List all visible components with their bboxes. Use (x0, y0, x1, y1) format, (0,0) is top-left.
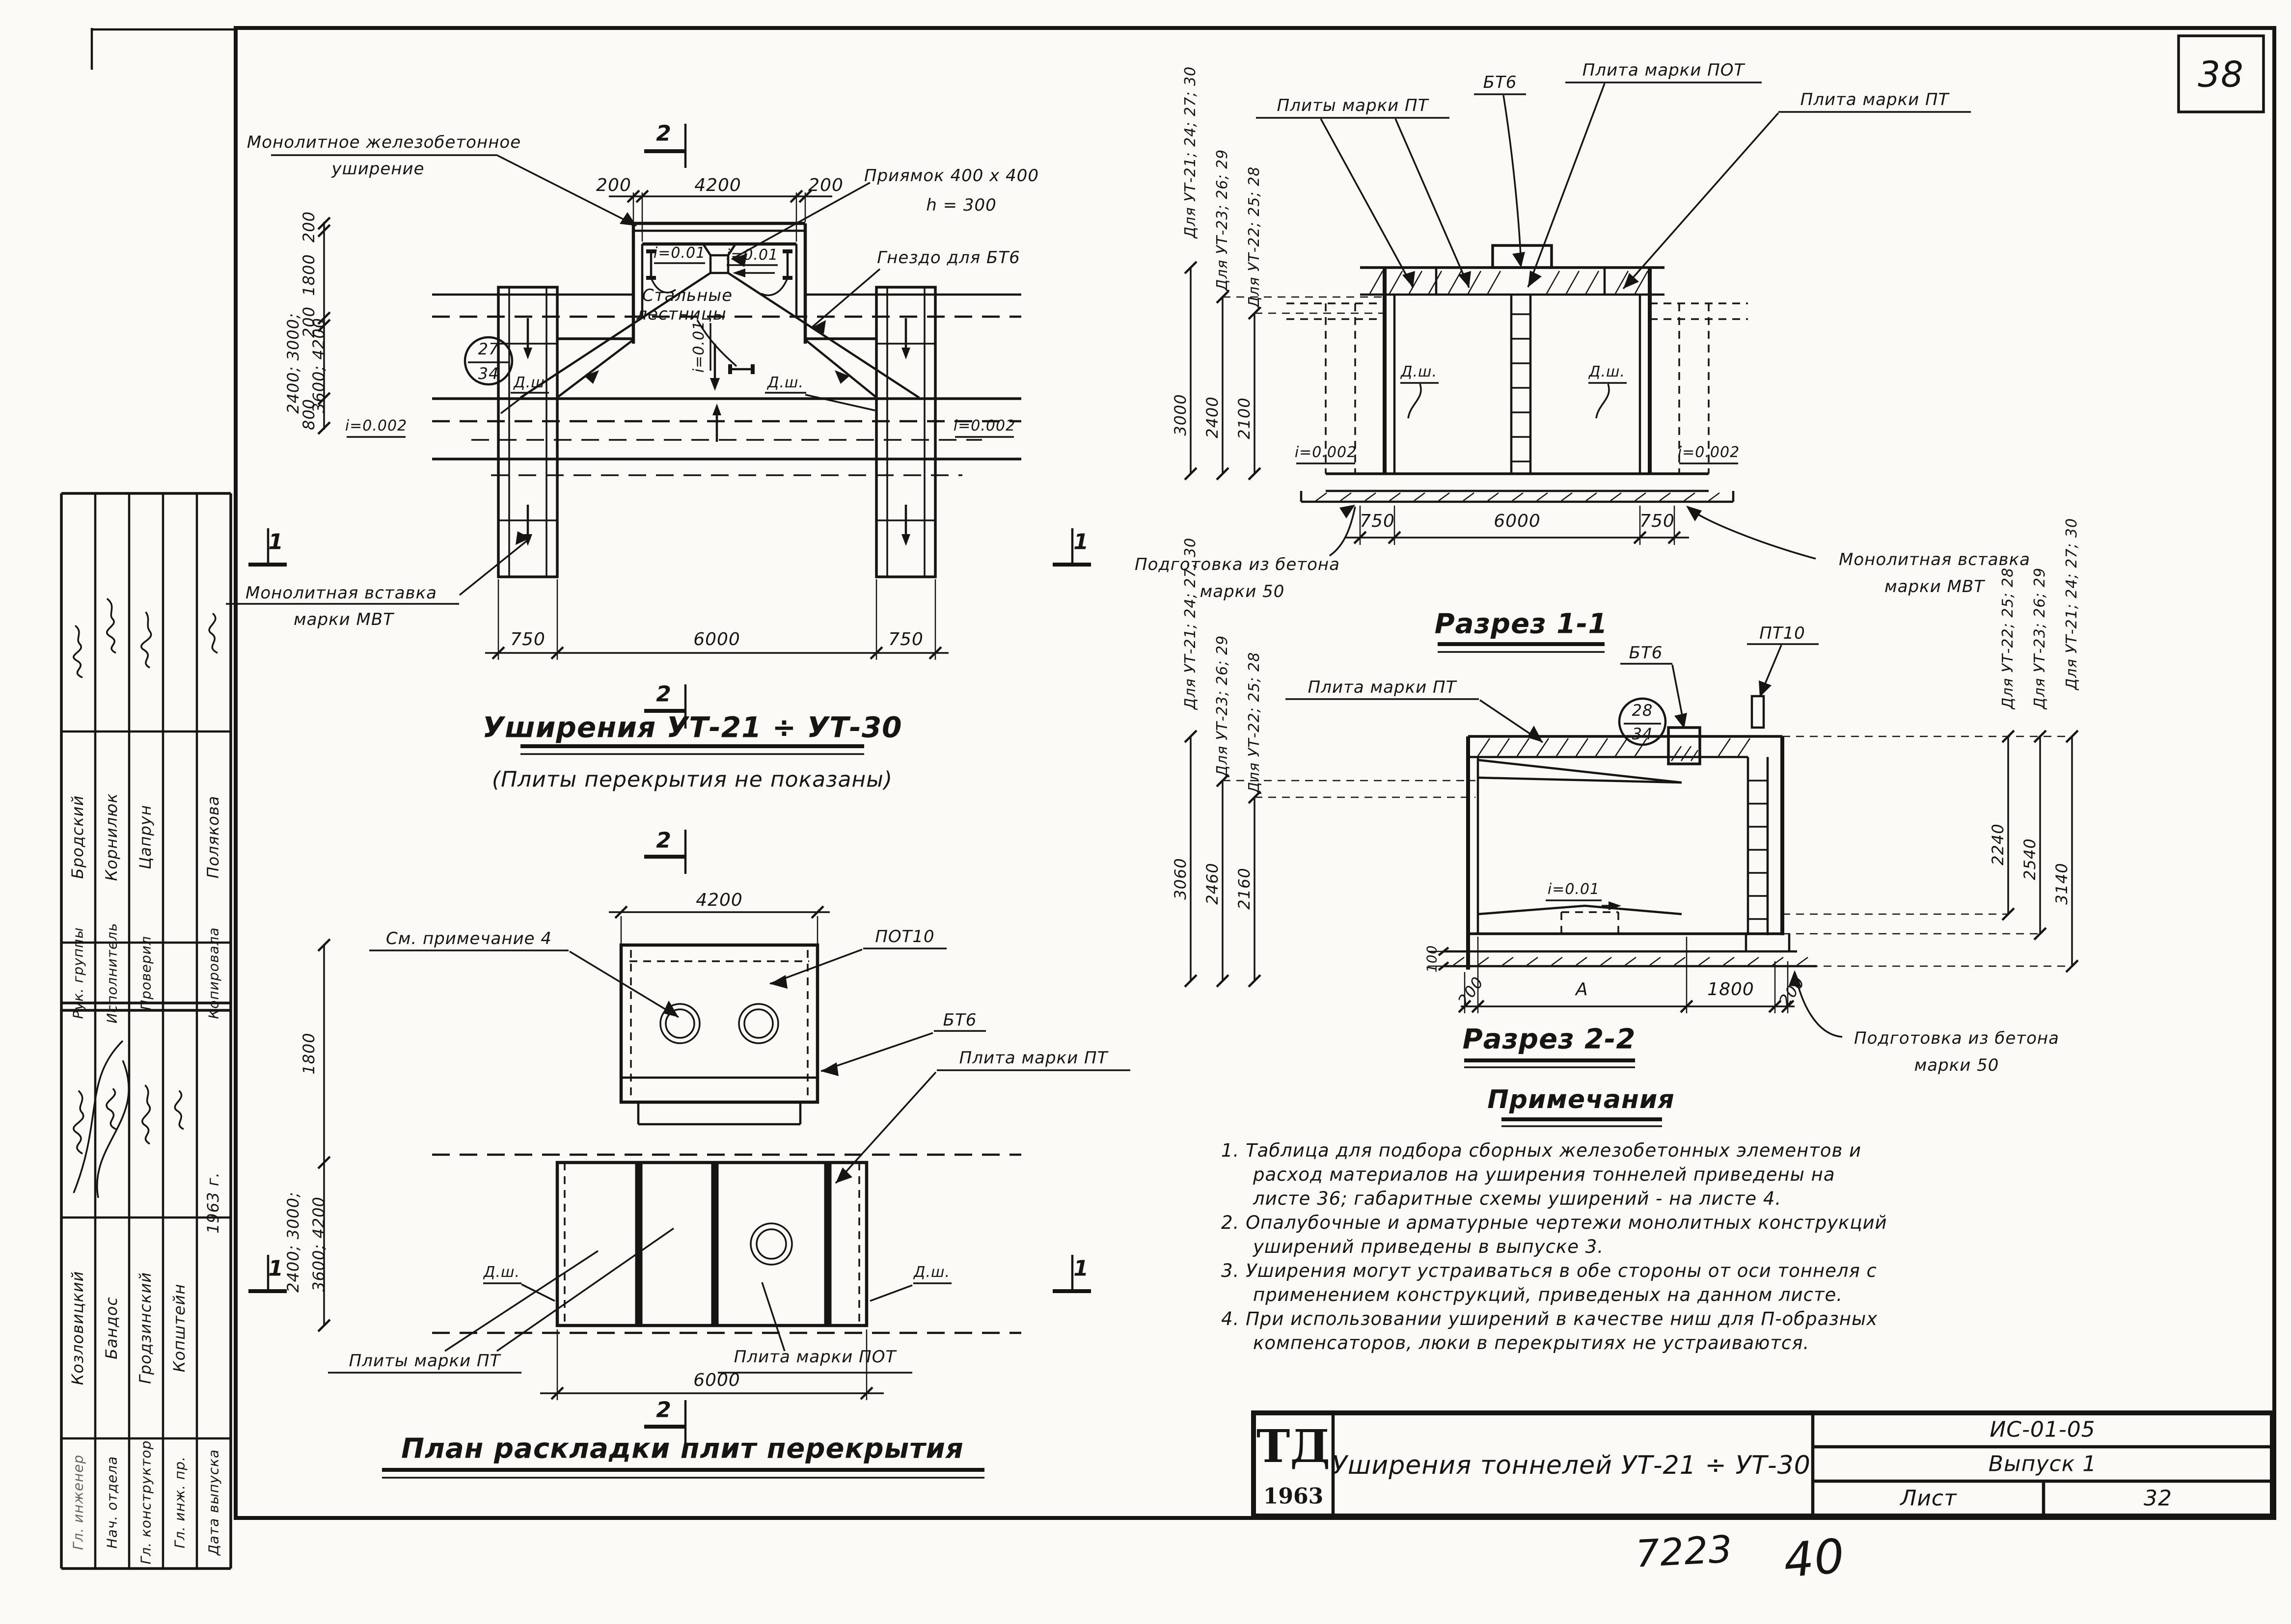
s11-label-plate-pt: Плита марки ПТ (1800, 90, 1949, 109)
s11-prep-1: Подготовка из бетона (1135, 555, 1340, 574)
s11-variant-1: Для УТ-21; 24; 27; 30 (1182, 66, 1199, 238)
dim-left-800: 800 (300, 399, 318, 430)
s11-insert-1: Монолитная вставка (1839, 550, 2030, 569)
s22-left-variant-3: Для УТ-22; 25; 28 (1246, 652, 1263, 793)
note-line: применением конструкций, приведеных на д… (1253, 1284, 1843, 1305)
note-line: 1. Таблица для подбора сборных железобет… (1221, 1140, 1861, 1161)
s3-dim-4200: 4200 (696, 891, 743, 910)
notes-heading: Примечания (1487, 1085, 1675, 1114)
marker-34: 34 (478, 365, 499, 383)
section-flag-2-top: 2 (656, 121, 672, 145)
s3-flag-1-left: 1 (268, 1256, 284, 1280)
s22-bt6: БТ6 (1629, 644, 1663, 662)
s22-right-height-1: 2240 (1990, 823, 2007, 865)
label-monolithic-widening-2: уширение (331, 160, 424, 178)
note-line: листе 36; габаритные схемы уширений - на… (1253, 1188, 1781, 1209)
sidebar-title-gl-inzh-pr: Гл. инж. пр. (172, 1456, 187, 1548)
s11-height-3000: 3000 (1172, 394, 1190, 435)
plan-slabs-title: План раскладки плит перекрытия (401, 1434, 964, 1465)
s22-plate-pt: Плита марки ПТ (1308, 678, 1457, 697)
label-pit: Приямок 400 х 400 (864, 166, 1039, 185)
label-slope-001-center: i=0.01 (691, 321, 708, 373)
s22-dim-100: 100 (1424, 945, 1439, 973)
label-ladders-1: Стальные (642, 286, 733, 305)
s11-dim-750-right: 750 (1639, 512, 1675, 531)
s22-right-variant-3: Для УТ-21; 24; 27; 30 (2064, 518, 2080, 690)
marker-28: 28 (1632, 702, 1653, 720)
sidebar-title-data-vypuska: Дата выпуска (206, 1449, 221, 1555)
section-flag-1-right: 1 (1073, 530, 1089, 554)
s11-height-2100: 2100 (1236, 397, 1254, 439)
dim-bottom-750-right: 750 (888, 630, 924, 650)
blueprint-sheet: 38 7223 40 Рук. группы Исполнитель Прове… (0, 0, 2291, 1624)
s3-flag-2-top: 2 (656, 828, 672, 852)
s11-dim-6000: 6000 (1494, 512, 1541, 531)
s3-dim-6000: 6000 (693, 1371, 740, 1390)
s22-right-variant-1: Для УТ-22; 25; 28 (2000, 568, 2017, 709)
s11-label-plates-pt: Плиты марки ПТ (1277, 96, 1429, 115)
marker-34b: 34 (1632, 726, 1653, 743)
label-insert-1: Монолитная вставка (245, 584, 437, 602)
plan-widening-subtitle: (Плиты перекрытия не показаны) (492, 767, 893, 791)
label-ladders-2: лестницы (636, 305, 726, 324)
note-line: 4. При использовании уширений в качестве… (1221, 1308, 1878, 1329)
s11-joint-right: Д.ш. (1589, 364, 1625, 380)
s11-dim-750-left: 750 (1360, 512, 1395, 531)
s3-plate-pt: Плита марки ПТ (959, 1049, 1108, 1067)
s22-left-variant-2: Для УТ-23; 26; 29 (1214, 635, 1231, 777)
section-flag-2-bottom: 2 (656, 682, 672, 706)
s11-insert-2: марки МВТ (1884, 577, 1985, 596)
org-logo: ТД (1256, 1420, 1330, 1473)
s11-slope-right: i=0.002 (1678, 444, 1740, 461)
note-line: компенсаторов, люки в перекрытиях не уст… (1253, 1332, 1809, 1353)
s3-plates-pt: Плиты марки ПТ (349, 1352, 501, 1370)
drawing-linework (0, 0, 2291, 1624)
plan-slabs-linework (248, 830, 1130, 1478)
sidebar-title-gl-inzhener: Гл. инженер (70, 1455, 85, 1550)
dim-bottom-750-left: 750 (510, 630, 545, 650)
s11-variant-3: Для УТ-22; 25; 28 (1246, 166, 1263, 308)
s3-dim-1800: 1800 (300, 1032, 318, 1074)
sidebar-title-proveril: Проверил (138, 936, 153, 1010)
sidebar-name-brodsky: Бродский (69, 795, 87, 879)
s3-bt6: БТ6 (943, 1011, 977, 1029)
label-monolithic-widening-1: Монолитное железобетонное (247, 133, 521, 152)
label-slope-001-right: i=0.01 (726, 247, 778, 264)
handwritten-code: 7223 (1635, 1528, 1734, 1574)
marker-27: 27 (478, 341, 499, 358)
s11-slope-left: i=0.002 (1295, 444, 1357, 461)
s22-right-height-2: 2540 (2021, 838, 2039, 880)
note-line: 3. Уширения могут устраиваться в обе сто… (1221, 1260, 1877, 1281)
label-joint-right: Д.ш. (767, 375, 804, 391)
s11-joint-left: Д.ш. (1401, 364, 1437, 380)
title-block-code: ИС-01-05 (1990, 1417, 2095, 1441)
s22-pt10: ПТ10 (1759, 624, 1805, 643)
label-slope-0002-right: i=0.002 (954, 418, 1015, 434)
s22-dim-1800: 1800 (1707, 980, 1754, 1000)
handwritten-number: 40 (1781, 1530, 1847, 1588)
s3-joint-right: Д.ш. (914, 1264, 950, 1281)
label-insert-2: марки МВТ (294, 610, 394, 629)
s11-variant-2: Для УТ-23; 26; 29 (1214, 149, 1231, 291)
note-line: уширений приведены в выпуске 3. (1253, 1236, 1604, 1257)
s3-dim-variants-1: 2400; 3000; (285, 1191, 302, 1293)
s3-joint-left: Д.ш. (484, 1264, 520, 1281)
label-joint-left: Д.ш (514, 375, 545, 391)
s22-left-height-3: 2160 (1236, 867, 1254, 909)
sheet-number: 38 (2198, 55, 2244, 95)
sidebar-name-kozlovitsky: Козловицкий (69, 1271, 87, 1385)
note-line: 2. Опалубочные и арматурные чертежи моно… (1221, 1212, 1887, 1233)
label-socket-bt6: Гнездо для БТ6 (877, 248, 1020, 267)
s3-dim-variants-2: 3600; 4200 (310, 1196, 328, 1292)
org-logo-year: 1963 (1263, 1484, 1323, 1509)
section-1-1-title: Разрез 1-1 (1435, 609, 1608, 640)
label-slope-001-left: i=0.01 (654, 245, 706, 262)
s3-flag-1-right: 1 (1073, 1256, 1089, 1280)
label-pit-height: h = 300 (926, 196, 997, 215)
sidebar-table-lines (61, 493, 231, 1569)
s3-flag-2-bottom: 2 (656, 1398, 672, 1422)
s22-slope: i=0.01 (1548, 881, 1600, 898)
sidebar-title-ispolnitel: Исполнитель (104, 922, 119, 1023)
s22-left-height-2: 2460 (1204, 863, 1222, 904)
s11-height-2400: 2400 (1204, 396, 1222, 438)
dim-top-200-right: 200 (808, 176, 844, 195)
sidebar-name-bandos: Бандос (103, 1297, 121, 1359)
s22-right-variant-2: Для УТ-23; 26; 29 (2032, 568, 2048, 709)
dim-left-200a: 200 (300, 211, 318, 243)
dim-bottom-6000: 6000 (693, 630, 740, 650)
section-2-2-linework (1185, 644, 2078, 1067)
sidebar-name-kornilyuk: Корнилюк (103, 793, 121, 881)
sidebar-name-kopshtein: Копштейн (171, 1284, 189, 1373)
sidebar-issue-year: 1963 г. (205, 1172, 222, 1234)
s22-left-variant-1: Для УТ-21; 24; 27; 30 (1182, 538, 1199, 709)
sidebar-name-polyakova: Полякова (205, 796, 222, 879)
sidebar-title-nach-otdela: Нач. отдела (104, 1456, 119, 1549)
s11-label-bt6: БТ6 (1483, 73, 1517, 92)
dim-left-1800: 1800 (300, 254, 318, 296)
label-slope-0002-left: i=0.002 (345, 418, 407, 434)
s22-prep-1: Подготовка из бетона (1854, 1029, 2059, 1048)
dim-top-200-left: 200 (596, 176, 631, 195)
s22-right-height-3: 3140 (2053, 863, 2071, 904)
s22-prep-2: марки 50 (1914, 1056, 1999, 1075)
sidebar-title-gl-konstruktor: Гл. конструктор (138, 1440, 153, 1565)
s22-dim-a: А (1576, 980, 1588, 1000)
title-block-sheet-number: 32 (2144, 1486, 2172, 1510)
title-block-sheet-label: Лист (1900, 1486, 1957, 1510)
sidebar-name-grodzinsky: Гродзинский (137, 1272, 155, 1384)
sidebar-title-kopirovala: Копировала (206, 927, 221, 1019)
section-flag-1-left: 1 (268, 530, 284, 554)
section-2-2-title: Разрез 2-2 (1463, 1025, 1636, 1056)
s11-prep-2: марки 50 (1200, 582, 1285, 601)
s3-pot10: ПОТ10 (875, 927, 934, 946)
sidebar-title-ruk-gruppy: Рук. группы (70, 927, 85, 1019)
dim-top-4200: 4200 (694, 176, 741, 195)
plan-widening-title: Уширения УТ-21 ÷ УТ-30 (482, 712, 902, 744)
s3-note-ref: См. примечание 4 (386, 929, 552, 948)
title-block-title: Уширения тоннелей УТ-21 ÷ УТ-30 (1332, 1451, 1811, 1480)
note-line: расход материалов на уширения тоннелей п… (1253, 1164, 1835, 1185)
title-block-issue: Выпуск 1 (1989, 1452, 2097, 1476)
s22-left-height-1: 3060 (1172, 858, 1190, 899)
sidebar-name-tsaprun: Цапрун (137, 805, 155, 869)
s3-plate-pot: Плита марки ПОТ (734, 1348, 896, 1366)
s11-label-plate-pot: Плита марки ПОТ (1582, 61, 1745, 80)
